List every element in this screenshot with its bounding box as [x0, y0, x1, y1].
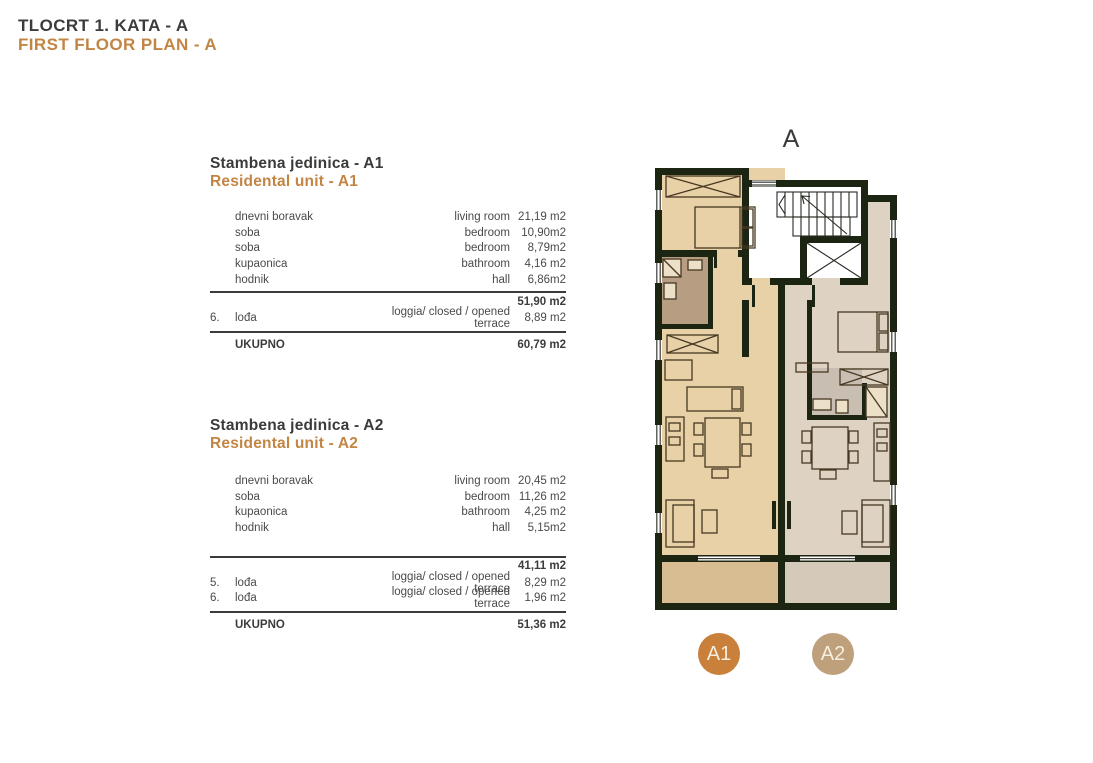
room-area: 5,15m2: [510, 522, 566, 534]
room-name-hr: lođa: [235, 592, 385, 604]
window-icon: [655, 190, 662, 210]
total-label: UKUPNO: [235, 339, 385, 351]
room-area: 4,25 m2: [510, 506, 566, 518]
room-name-en: loggia/ closed / opened terrace: [385, 306, 510, 330]
room-area: 8,79m2: [510, 242, 566, 254]
total-row: UKUPNO 51,36 m2: [210, 617, 566, 633]
unit-a1-entry-door: [752, 285, 755, 307]
table-row: kupaonica bathroom 4,25 m2: [210, 504, 566, 520]
room-name-hr: lođa: [235, 577, 385, 589]
table-row: hodnik hall 6,86m2: [210, 272, 566, 288]
table-row: soba bedroom 10,90m2: [210, 225, 566, 241]
room-name-hr: soba: [235, 242, 385, 254]
room-name-hr: hodnik: [235, 522, 385, 534]
loggia-door-a1: [772, 501, 776, 529]
room-area: 1,96 m2: [510, 592, 566, 604]
room-name-en: living room: [385, 211, 510, 223]
table-row: 6. lođa loggia/ closed / opened terrace …: [210, 590, 566, 606]
window-icon: [655, 340, 662, 360]
room-area: 8,29 m2: [510, 577, 566, 589]
room-area: 21,19 m2: [510, 211, 566, 223]
unit-a1-rows: dnevni boravak living room 21,19 m2 soba…: [210, 209, 566, 287]
table-row: 6. lođa loggia/ closed / opened terrace …: [210, 310, 566, 326]
unit-a1-badge: A1: [698, 633, 740, 675]
room-name-hr: soba: [235, 227, 385, 239]
row-number: 5.: [210, 577, 235, 589]
room-name-hr: dnevni boravak: [235, 211, 385, 223]
room-name-en: loggia/ closed / opened terrace: [385, 586, 510, 610]
document-title-english: FIRST FLOOR PLAN - A: [18, 35, 217, 54]
total-label: UKUPNO: [235, 619, 385, 631]
unit-a2-rows: dnevni boravak living room 20,45 m2 soba…: [210, 473, 566, 552]
room-fills: [655, 168, 897, 610]
building-label: A: [650, 125, 932, 154]
total-area: 60,79 m2: [510, 339, 566, 351]
subtotal-area: 51,90 m2: [510, 296, 566, 308]
empty-row: [210, 536, 566, 552]
table-rule: [210, 611, 566, 613]
window-icon: [655, 425, 662, 445]
window-icon: [890, 485, 897, 505]
document-title: TLOCRT 1. KATA - A FIRST FLOOR PLAN - A: [18, 16, 217, 54]
table-row: hodnik hall 5,15m2: [210, 520, 566, 536]
table-row: dnevni boravak living room 20,45 m2: [210, 473, 566, 489]
room-name-hr: kupaonica: [235, 258, 385, 270]
room-name-hr: soba: [235, 491, 385, 503]
table-row: soba bedroom 8,79m2: [210, 240, 566, 256]
loggia-door-a2: [787, 501, 791, 529]
table-row: kupaonica bathroom 4,16 m2: [210, 256, 566, 272]
unit-a2-loggia: [785, 562, 890, 603]
unit-a2-table: Stambena jedinica - A2 Residental unit -…: [210, 417, 566, 633]
room-name-en: hall: [385, 274, 510, 286]
unit-a2-badge: A2: [812, 633, 854, 675]
room-name-hr: kupaonica: [235, 506, 385, 518]
window-icon: [655, 263, 662, 283]
window-icon: [655, 513, 662, 533]
bedroom-door: [714, 250, 717, 268]
room-area: 10,90m2: [510, 227, 566, 239]
table-rule: [210, 331, 566, 333]
unit-a2-title-english: Residental unit - A2: [210, 435, 566, 453]
unit-a1-loggia: [662, 562, 778, 603]
subtotal-area: 41,11 m2: [510, 560, 566, 572]
unit-a1-title-english: Residental unit - A1: [210, 173, 566, 191]
room-name-en: bathroom: [385, 258, 510, 270]
room-area: 20,45 m2: [510, 475, 566, 487]
total-area: 51,36 m2: [510, 619, 566, 631]
unit-a2-entry-door: [812, 285, 815, 307]
room-name-en: hall: [385, 522, 510, 534]
row-number: 6.: [210, 312, 235, 324]
room-area: 11,26 m2: [510, 491, 566, 503]
room-name-hr: lođa: [235, 312, 385, 324]
unit-a1-title-croatian: Stambena jedinica - A1: [210, 155, 566, 173]
floor-plan-drawing: [650, 165, 900, 615]
room-name-hr: hodnik: [235, 274, 385, 286]
window-icon: [890, 332, 897, 352]
unit-a1-table: Stambena jedinica - A1 Residental unit -…: [210, 155, 566, 353]
room-name-en: bedroom: [385, 491, 510, 503]
unit-a2-title-croatian: Stambena jedinica - A2: [210, 417, 566, 435]
table-row: soba bedroom 11,26 m2: [210, 489, 566, 505]
room-name-en: living room: [385, 475, 510, 487]
room-name-en: bedroom: [385, 242, 510, 254]
total-row: UKUPNO 60,79 m2: [210, 337, 566, 353]
room-name-hr: dnevni boravak: [235, 475, 385, 487]
document-title-croatian: TLOCRT 1. KATA - A: [18, 16, 217, 35]
room-name-en: bedroom: [385, 227, 510, 239]
page: TLOCRT 1. KATA - A FIRST FLOOR PLAN - A …: [0, 0, 1093, 763]
window-icon: [890, 220, 897, 238]
room-area: 6,86m2: [510, 274, 566, 286]
row-number: 6.: [210, 592, 235, 604]
room-name-en: bathroom: [385, 506, 510, 518]
elevator-icon: [807, 243, 861, 278]
room-area: 8,89 m2: [510, 312, 566, 324]
room-area: 4,16 m2: [510, 258, 566, 270]
window-icon: [752, 181, 776, 187]
floor-plan-panel: A: [650, 125, 900, 685]
table-row: dnevni boravak living room 21,19 m2: [210, 209, 566, 225]
